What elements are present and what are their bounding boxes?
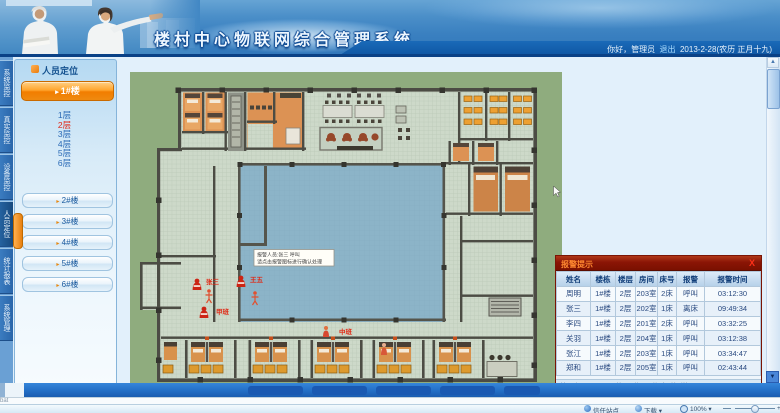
svg-text:中班: 中班: [339, 327, 353, 336]
svg-text:甲班: 甲班: [216, 307, 230, 316]
svg-text:张三: 张三: [206, 277, 220, 286]
svg-text:报警人员:张三 呼叫: 报警人员:张三 呼叫: [257, 252, 300, 259]
svg-text:请点击报警图标进行确认处理: 请点击报警图标进行确认处理: [257, 259, 322, 266]
svg-text:王五: 王五: [250, 276, 264, 284]
